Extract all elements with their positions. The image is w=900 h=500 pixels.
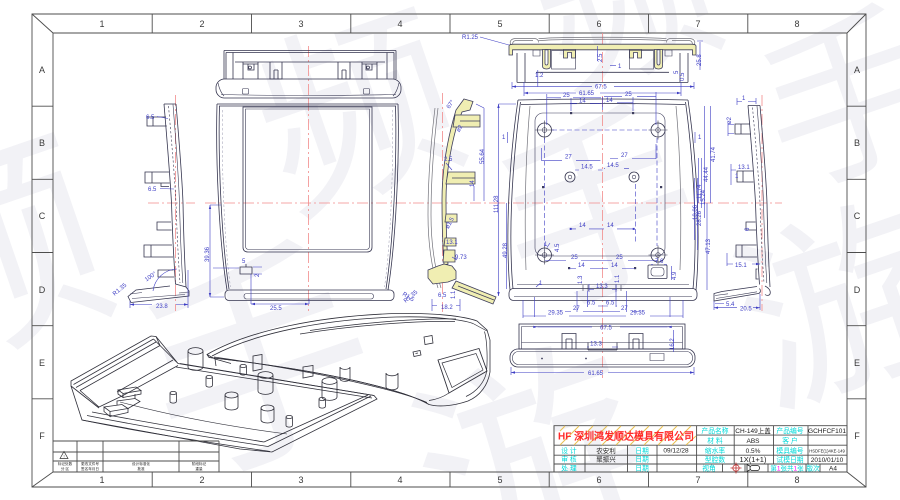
svg-text:C: C [39,211,46,221]
svg-text:GCHFCF101: GCHFCF101 [808,428,846,435]
svg-text:0.5: 0.5 [680,72,686,81]
svg-text:材 料: 材 料 [707,436,723,445]
svg-text:7: 7 [695,19,700,29]
svg-text:27: 27 [565,155,572,161]
svg-text:产品编号: 产品编号 [776,426,803,435]
svg-text:8: 8 [794,19,799,29]
svg-text:25.5: 25.5 [270,306,282,312]
svg-text:审 核: 审 核 [561,455,577,464]
svg-text:客 户: 客 户 [782,436,797,445]
svg-text:8: 8 [794,475,799,485]
svg-text:更改文件号: 更改文件号 [81,461,99,466]
svg-text:14: 14 [607,223,614,229]
svg-text:缩水率: 缩水率 [705,446,726,455]
svg-text:设计标准化: 设计标准化 [132,461,150,466]
svg-text:67.5: 67.5 [600,325,612,331]
svg-text:HSDFE(1)4KE-149: HSDFE(1)4KE-149 [809,449,845,454]
svg-text:2.5: 2.5 [444,157,453,163]
svg-text:1X(1+1): 1X(1+1) [740,455,767,464]
svg-text:7: 7 [695,475,700,485]
svg-text:28.26: 28.26 [697,210,703,226]
svg-text:1.3: 1.3 [578,275,584,284]
svg-text:E: E [39,358,45,368]
svg-text:1.2: 1.2 [535,73,544,79]
svg-text:!: ! [63,454,64,459]
svg-text:25.8: 25.8 [697,54,703,66]
svg-text:D: D [854,285,861,295]
svg-text:67.5: 67.5 [595,85,607,91]
svg-text:处 理: 处 理 [561,463,577,472]
svg-text:日期: 日期 [635,447,649,455]
svg-text:3: 3 [298,19,303,29]
svg-text:农安利: 农安利 [596,446,616,455]
svg-text:55.64: 55.64 [480,148,486,164]
svg-text:25: 25 [563,93,570,99]
svg-text:F: F [854,431,860,441]
svg-text:2.5: 2.5 [598,53,604,62]
svg-text:4: 4 [397,19,402,29]
svg-text:111.28: 111.28 [494,195,500,213]
svg-text:B: B [39,138,45,148]
svg-text:14.5: 14.5 [581,165,593,171]
svg-text:14: 14 [579,223,586,229]
svg-text:47.13: 47.13 [706,238,712,254]
svg-text:型腔数: 型腔数 [705,455,726,464]
svg-text:A: A [39,65,45,75]
svg-text:2: 2 [199,475,204,485]
svg-text:6.5: 6.5 [146,115,155,121]
svg-text:2010/01/10: 2010/01/10 [811,457,844,464]
svg-text:09/12/28: 09/12/28 [663,448,689,455]
svg-text:日期: 日期 [635,456,649,464]
svg-text:25: 25 [571,255,578,261]
svg-text:ABS: ABS [746,438,760,445]
svg-text:0.5%: 0.5% [746,448,761,455]
svg-text:试模日期: 试模日期 [776,455,803,464]
svg-text:4: 4 [397,475,402,485]
svg-text:1.1: 1.1 [615,274,621,283]
svg-text:14.5: 14.5 [607,163,619,169]
svg-text:20.5: 20.5 [740,307,752,313]
svg-text:重量: 重量 [195,466,203,471]
svg-text:2: 2 [199,19,204,29]
svg-text:签名年月日: 签名年月日 [81,466,99,471]
svg-text:模具编号: 模具编号 [776,446,803,455]
svg-text:日期: 日期 [635,464,649,472]
svg-text:批准: 批准 [137,466,145,471]
svg-text:27: 27 [621,153,628,159]
svg-text:5.4: 5.4 [726,302,735,308]
svg-text:视角: 视角 [702,464,716,473]
svg-text:44.44: 44.44 [704,166,710,182]
svg-text:41.74: 41.74 [711,146,717,162]
svg-text:A: A [854,65,860,75]
svg-text:3: 3 [298,475,303,485]
svg-text:15.1: 15.1 [735,263,747,269]
svg-text:6.5: 6.5 [587,301,596,307]
svg-text:13.3: 13.3 [596,284,608,290]
svg-text:聚振兴: 聚振兴 [596,455,616,464]
svg-text:版次: 版次 [806,464,820,473]
svg-text:6: 6 [596,19,601,29]
svg-text:29.35: 29.35 [548,311,564,317]
svg-text:14: 14 [578,263,585,269]
svg-text:E: E [854,358,860,368]
svg-text:1: 1 [99,19,104,29]
svg-text:4.5: 4.5 [555,243,561,252]
svg-text:C: C [854,211,861,221]
svg-text:产品名称: 产品名称 [701,426,728,435]
svg-text:14: 14 [611,263,618,269]
svg-text:27: 27 [573,306,580,312]
svg-text:39.36: 39.36 [205,246,211,262]
svg-text:29.35: 29.35 [630,311,646,317]
svg-text:4.9: 4.9 [672,271,678,280]
svg-text:7.6: 7.6 [655,259,664,265]
svg-text:6.5: 6.5 [438,293,447,299]
svg-text:分 区: 分 区 [61,466,70,471]
svg-text:ø2: ø2 [727,116,733,124]
svg-text:23.8: 23.8 [156,304,168,310]
svg-text:25: 25 [616,255,623,261]
svg-text:R1.25: R1.25 [462,35,479,41]
svg-text:15.24: 15.24 [701,189,707,205]
svg-text:13.1: 13.1 [446,240,458,246]
svg-text:18.2: 18.2 [441,305,453,311]
svg-text:6.5: 6.5 [148,187,157,193]
svg-text:27: 27 [621,306,628,312]
svg-text:61.65: 61.65 [588,371,604,377]
svg-text:阶段标记: 阶段标记 [192,461,207,466]
svg-text:13.1: 13.1 [738,165,750,171]
svg-text:49.28: 49.28 [503,242,509,258]
svg-text:设 计: 设 计 [561,446,577,455]
svg-text:5: 5 [497,19,502,29]
svg-text:A4: A4 [829,466,837,473]
svg-text:第1张共1张: 第1张共1张 [770,464,804,473]
svg-text:13.3: 13.3 [590,342,602,348]
svg-text:14: 14 [579,99,586,105]
svg-text:14: 14 [470,180,476,187]
svg-text:6: 6 [596,475,601,485]
svg-text:HF 深圳鸿发顺达模具有限公司: HF 深圳鸿发顺达模具有限公司 [558,430,694,443]
svg-text:F: F [39,431,45,441]
svg-text:6.5: 6.5 [606,301,615,307]
svg-text:CH-149上盖: CH-149上盖 [735,426,771,435]
svg-text:61.65: 61.65 [579,91,595,97]
svg-text:25: 25 [625,92,632,98]
svg-text:5: 5 [497,475,502,485]
svg-text:1: 1 [99,475,104,485]
svg-text:14: 14 [606,98,613,104]
svg-text:D: D [39,285,46,295]
svg-text:标记处数: 标记处数 [58,461,73,466]
svg-text:16.2: 16.2 [670,338,676,350]
svg-text:B: B [854,138,860,148]
svg-text:1.1: 1.1 [451,290,457,299]
